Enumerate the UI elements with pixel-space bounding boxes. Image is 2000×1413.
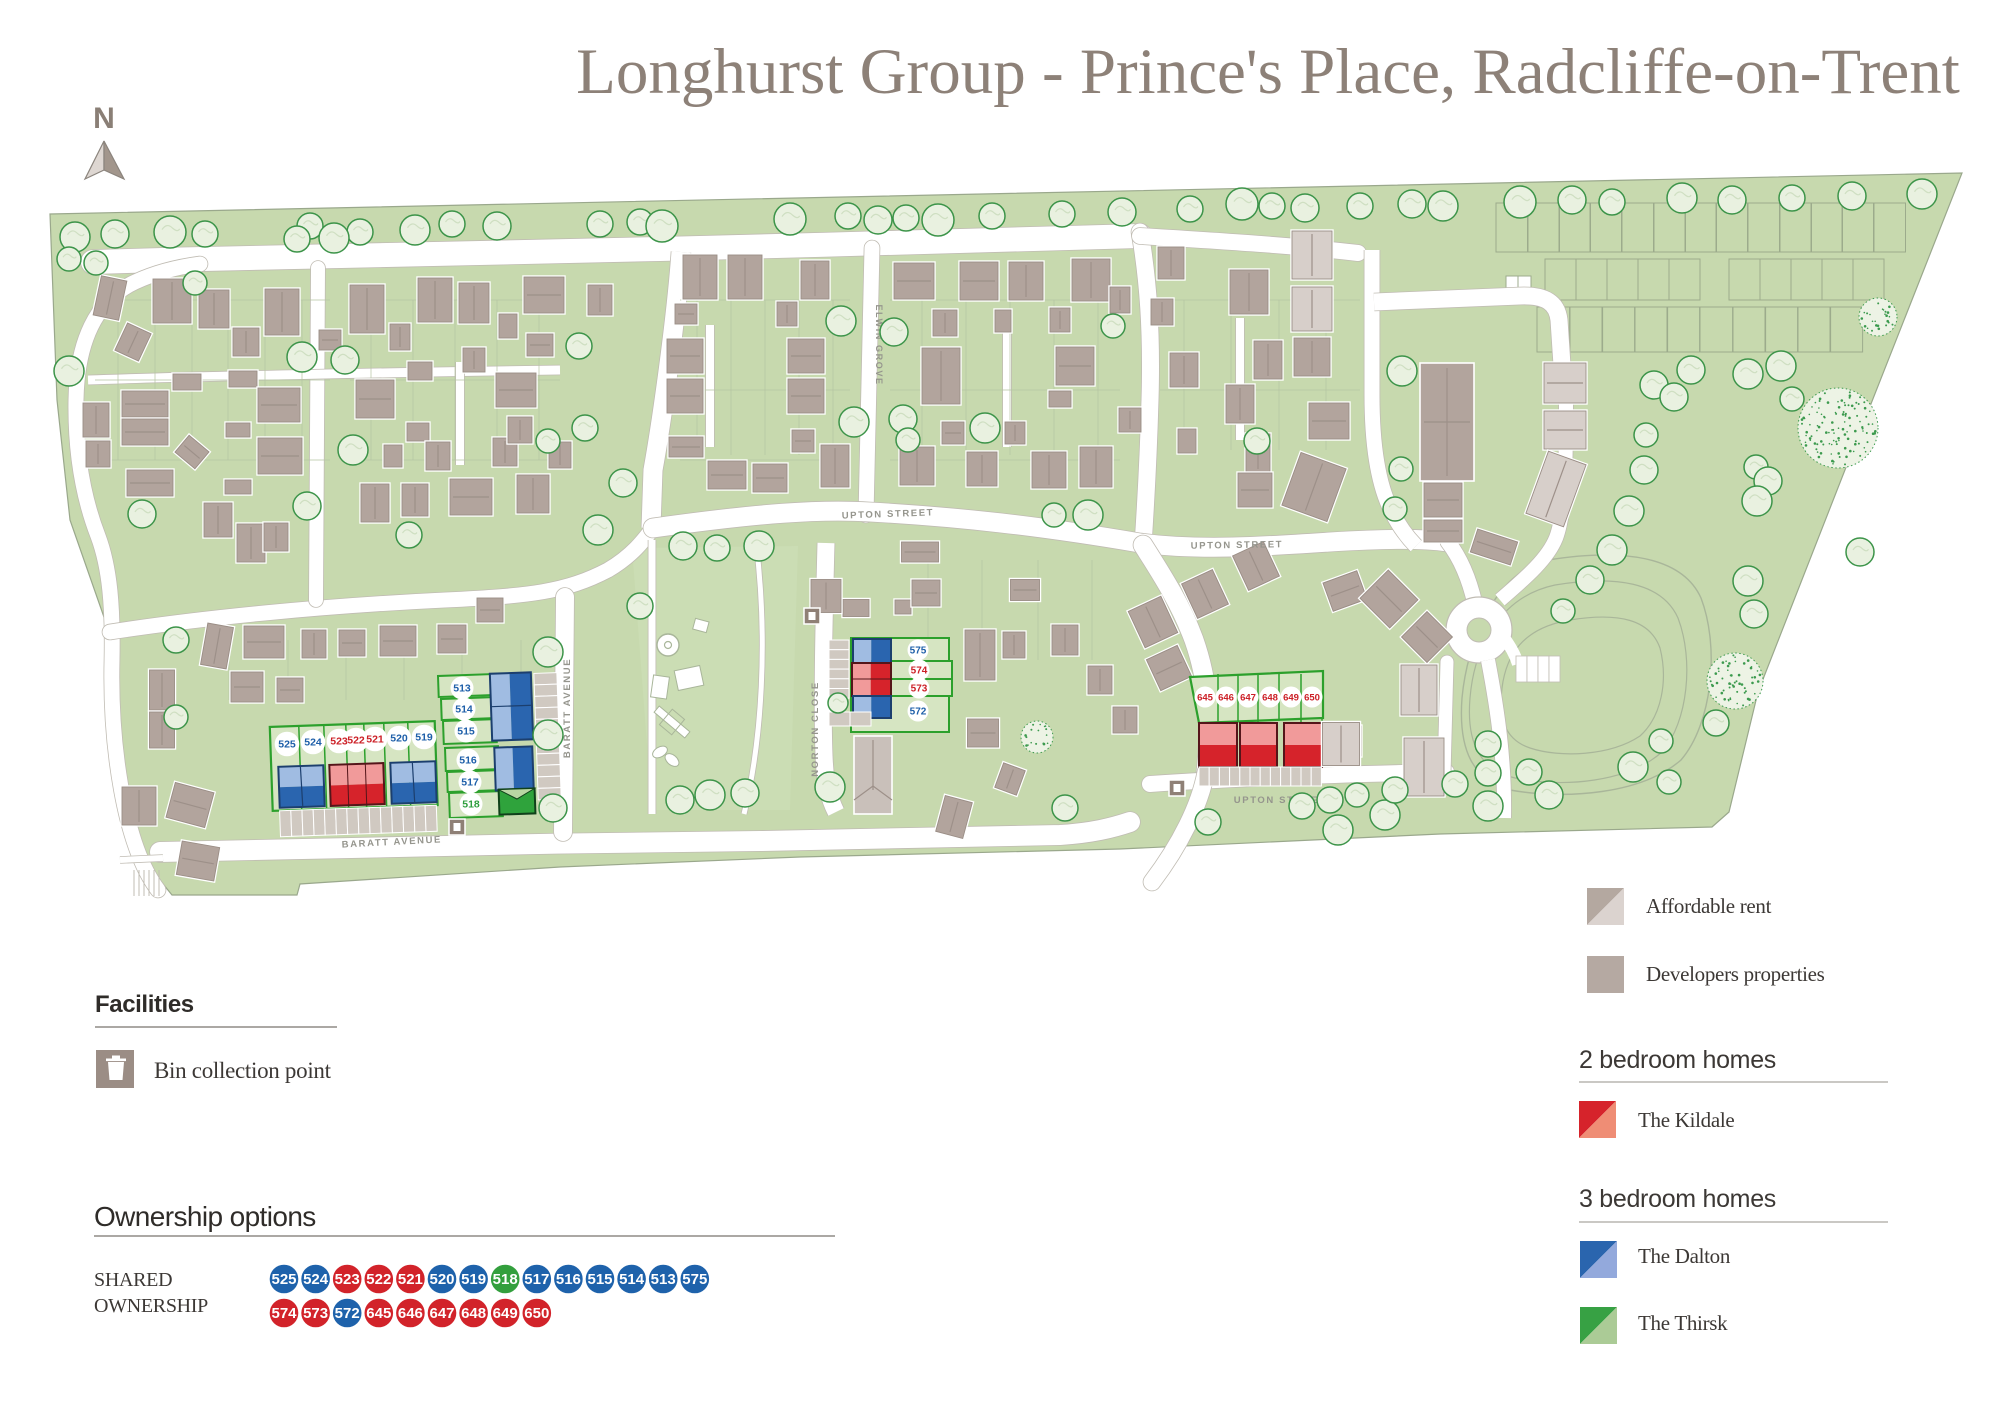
svg-text:525: 525 [271, 1271, 296, 1288]
svg-text:521: 521 [366, 734, 384, 746]
svg-text:645: 645 [366, 1305, 391, 1322]
svg-text:573: 573 [303, 1305, 328, 1322]
svg-text:516: 516 [459, 755, 477, 767]
svg-text:572: 572 [910, 707, 927, 718]
svg-text:519: 519 [461, 1271, 486, 1288]
svg-text:518: 518 [462, 799, 480, 811]
svg-text:Ownership options: Ownership options [94, 1201, 316, 1232]
svg-text:The Dalton: The Dalton [1638, 1244, 1731, 1268]
svg-text:UPTON STREET: UPTON STREET [1191, 539, 1284, 552]
svg-text:Affordable rent: Affordable rent [1646, 894, 1772, 918]
svg-text:524: 524 [304, 737, 322, 749]
svg-text:Longhurst Group - Prince's Pla: Longhurst Group - Prince's Place, Radcli… [576, 36, 1960, 108]
svg-text:646: 646 [1218, 692, 1234, 703]
svg-text:Developers properties: Developers properties [1646, 962, 1825, 986]
svg-text:BARATT AVENUE: BARATT AVENUE [562, 658, 573, 758]
svg-text:649: 649 [493, 1305, 518, 1322]
svg-text:Facilities: Facilities [95, 991, 194, 1018]
svg-text:523: 523 [330, 736, 348, 748]
svg-text:513: 513 [651, 1271, 676, 1288]
svg-text:520: 520 [429, 1271, 454, 1288]
svg-text:ELWIN GROVE: ELWIN GROVE [874, 304, 884, 385]
svg-text:520: 520 [390, 733, 408, 745]
svg-text:515: 515 [457, 726, 475, 738]
svg-text:3 bedroom homes: 3 bedroom homes [1579, 1185, 1776, 1213]
svg-text:645: 645 [1197, 692, 1214, 703]
svg-text:522: 522 [366, 1271, 391, 1288]
svg-text:518: 518 [493, 1271, 518, 1288]
svg-text:649: 649 [1283, 692, 1299, 703]
svg-text:N: N [93, 102, 115, 135]
svg-text:The Thirsk: The Thirsk [1638, 1311, 1728, 1335]
svg-text:650: 650 [1304, 692, 1320, 703]
svg-text:515: 515 [587, 1271, 612, 1288]
svg-text:513: 513 [453, 683, 471, 695]
svg-text:The Kildale: The Kildale [1638, 1108, 1734, 1132]
svg-text:650: 650 [524, 1305, 549, 1322]
svg-text:575: 575 [682, 1271, 707, 1288]
svg-text:524: 524 [303, 1271, 329, 1288]
svg-text:574: 574 [271, 1305, 297, 1322]
svg-text:SHARED: SHARED [94, 1269, 172, 1291]
svg-text:514: 514 [619, 1271, 645, 1288]
svg-text:646: 646 [398, 1305, 423, 1322]
svg-text:517: 517 [524, 1271, 549, 1288]
svg-text:647: 647 [429, 1305, 454, 1322]
svg-text:523: 523 [335, 1271, 360, 1288]
svg-text:525: 525 [278, 739, 296, 751]
svg-text:573: 573 [911, 684, 928, 695]
svg-text:2 bedroom homes: 2 bedroom homes [1579, 1046, 1776, 1074]
svg-text:NORTON CLOSE: NORTON CLOSE [810, 681, 821, 777]
svg-text:522: 522 [347, 735, 365, 747]
svg-text:517: 517 [461, 777, 479, 789]
svg-text:OWNERSHIP: OWNERSHIP [94, 1295, 208, 1317]
svg-text:648: 648 [461, 1305, 486, 1322]
svg-text:519: 519 [415, 732, 433, 744]
svg-text:514: 514 [455, 704, 473, 716]
svg-text:572: 572 [335, 1305, 360, 1322]
svg-text:647: 647 [1240, 692, 1256, 703]
svg-text:574: 574 [911, 666, 928, 677]
svg-text:Bin collection point: Bin collection point [154, 1058, 332, 1083]
svg-text:521: 521 [398, 1271, 423, 1288]
svg-text:575: 575 [910, 646, 927, 657]
svg-text:648: 648 [1262, 692, 1278, 703]
svg-text:516: 516 [556, 1271, 581, 1288]
